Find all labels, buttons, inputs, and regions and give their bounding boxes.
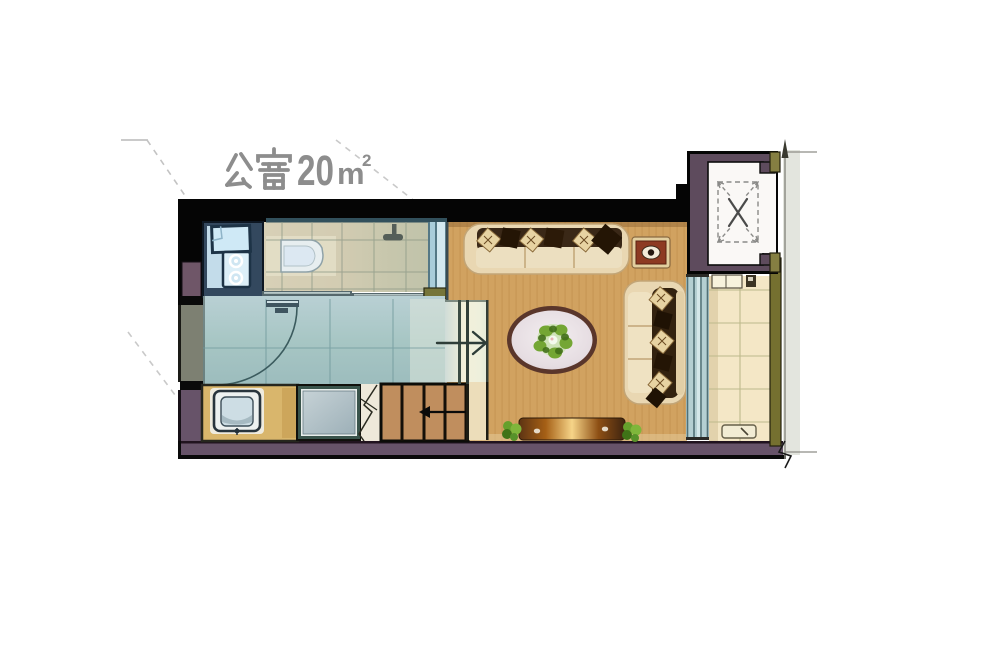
- svg-text:2: 2: [362, 151, 371, 170]
- svg-text:20: 20: [297, 147, 334, 195]
- svg-text:m: m: [337, 156, 365, 191]
